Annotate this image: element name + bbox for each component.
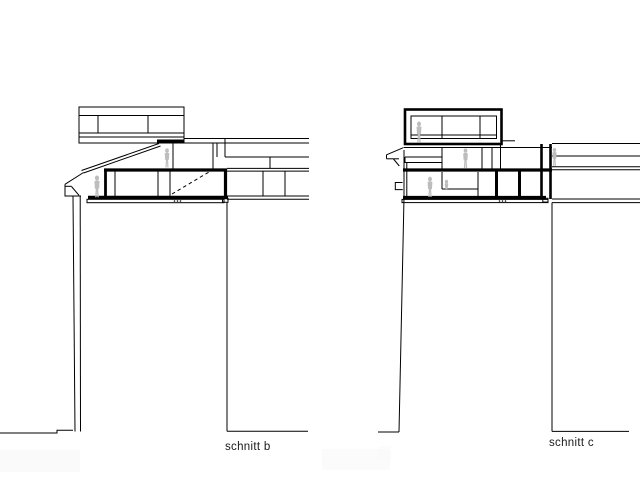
section-c-upper-volume — [405, 110, 515, 145]
person-figure — [463, 148, 468, 168]
section-b-ground-line — [0, 196, 308, 433]
shadow-patches — [0, 446, 391, 472]
section-c-lower-floor — [402, 144, 551, 203]
section-c-upper-floor — [403, 144, 552, 170]
sections-svg — [0, 0, 640, 480]
section-b-stair-dashed — [172, 169, 214, 194]
section-b-eave-detail — [65, 173, 84, 197]
person-figure — [165, 148, 170, 167]
person-figure — [94, 176, 99, 198]
section-b-upper-volume — [79, 107, 184, 143]
person-figure — [417, 122, 422, 143]
section-c-drawing — [378, 110, 640, 433]
section-c-eave-detail — [387, 148, 404, 190]
section-c-ground-line — [378, 198, 629, 433]
section-b-drawing — [0, 107, 309, 433]
section-b-label: schnitt b — [225, 441, 271, 453]
section-c-right-bands — [552, 144, 640, 203]
person-figure — [428, 177, 433, 197]
section-c-label: schnitt c — [549, 437, 594, 449]
child-figure — [445, 180, 449, 189]
person-figure — [552, 148, 556, 166]
architectural-sections-sheet: schnitt b schnitt c — [0, 0, 640, 480]
